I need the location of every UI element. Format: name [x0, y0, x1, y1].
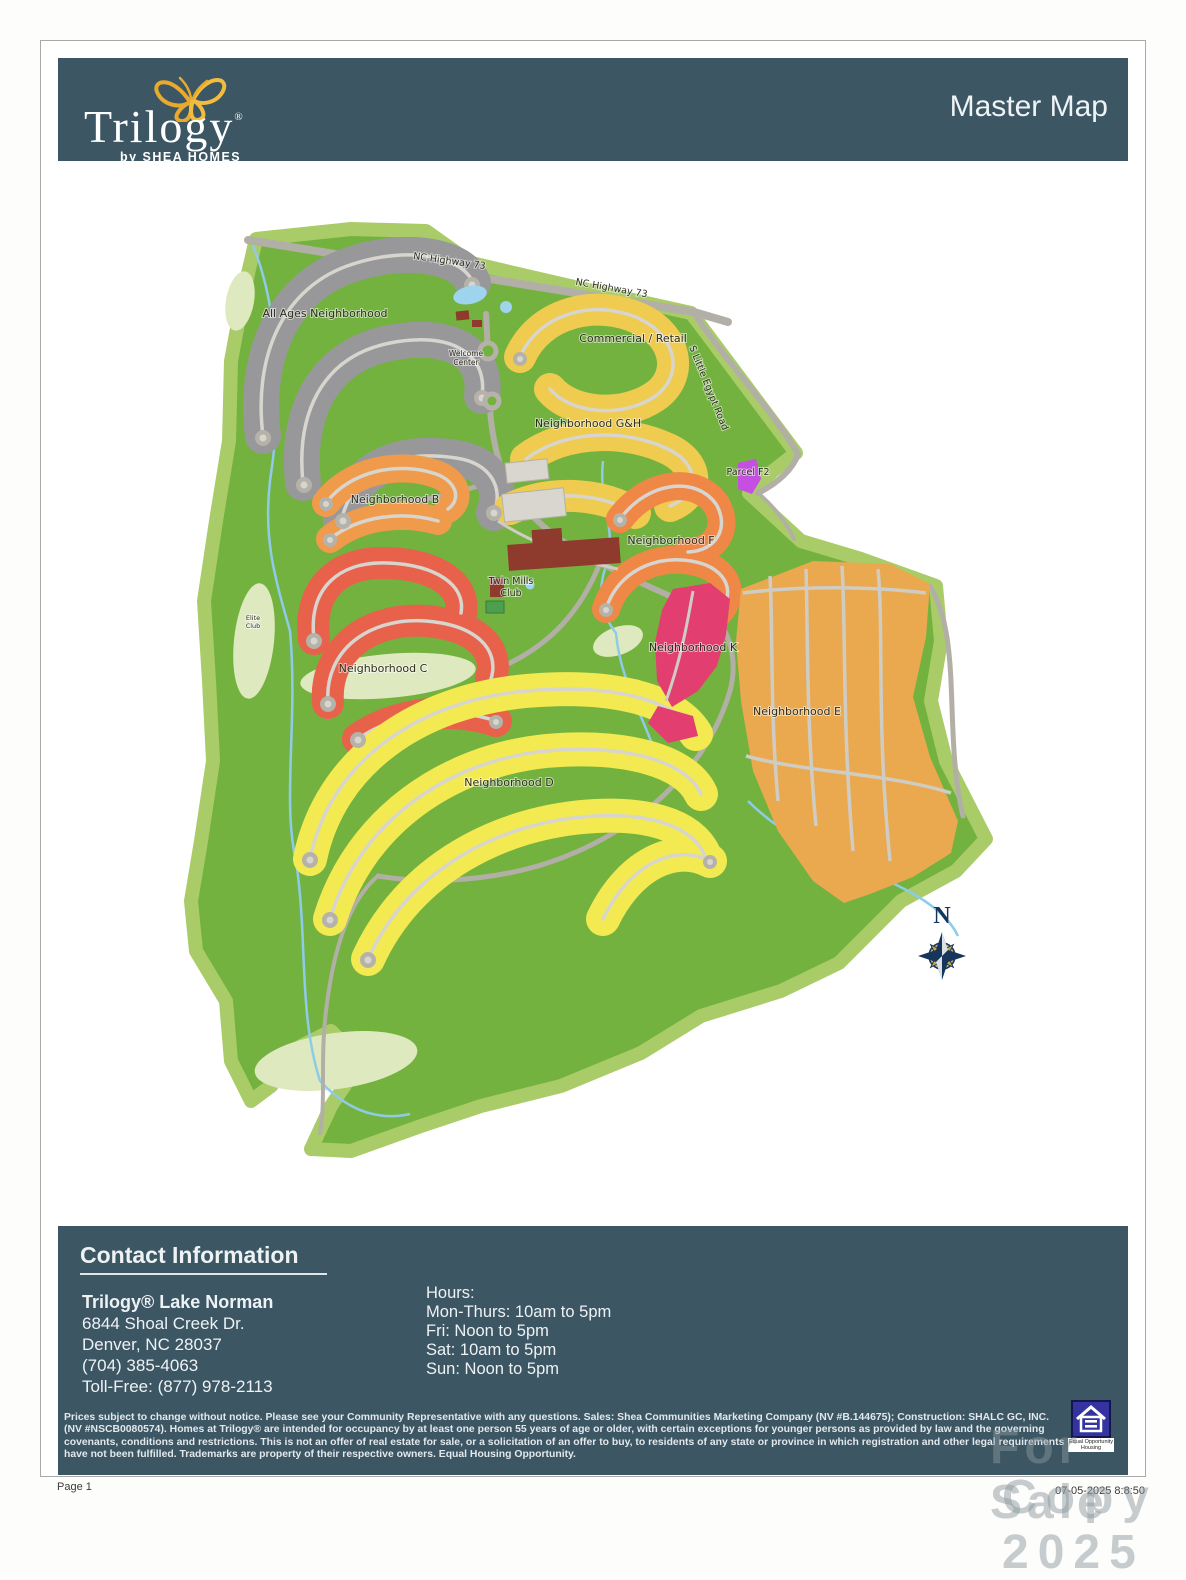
map-label-neighborhood-b: Neighborhood B [351, 493, 440, 506]
contact-section: Contact Information Trilogy® Lake Norman… [58, 1226, 1128, 1475]
address-line-2: Denver, NC 28037 [82, 1334, 273, 1355]
map-label-welcome-center-1: Welcome [449, 349, 484, 358]
map-label-neighborhood-c: Neighborhood C [339, 662, 428, 675]
community-name: Trilogy® Lake Norman [82, 1292, 273, 1313]
map-label-neighborhood-d: Neighborhood D [464, 776, 553, 789]
map-label-twin-mills-1: Twin Mills [488, 576, 534, 587]
contact-details: Trilogy® Lake Norman 6844 Shoal Creek Dr… [82, 1292, 273, 1397]
hours-heading: Hours: [426, 1284, 611, 1303]
contact-heading: Contact Information [80, 1242, 327, 1275]
map-label-neighborhood-k: Neighborhood K [649, 641, 738, 654]
hours-line: Fri: Noon to 5pm [426, 1322, 611, 1341]
map-label-parcel-f2: Parcel F2 [726, 467, 769, 478]
tollfree-number: Toll-Free: (877) 978-2113 [82, 1376, 273, 1397]
compass-north-label: N [933, 903, 951, 929]
footer-page-number: Page 1 [57, 1481, 92, 1493]
map-label-neighborhood-e: Neighborhood E [753, 705, 841, 718]
address-line-1: 6844 Shoal Creek Dr. [82, 1313, 273, 1334]
brand-name: Trilogy® [84, 104, 243, 150]
trilogy-logo: Trilogy® by SHEA HOMES [84, 60, 344, 160]
map-label-twin-mills-2: Club [500, 588, 521, 599]
master-map: All Ages Neighborhood NC Highway 73 NC H… [58, 161, 1131, 1226]
phone-number: (704) 385-4063 [82, 1355, 273, 1376]
equal-housing-caption-2: Housing [1068, 1445, 1114, 1451]
document-page: Trilogy® by SHEA HOMES Master Map [40, 40, 1146, 1477]
brand-registered-mark: ® [234, 111, 242, 123]
header-bar: Trilogy® by SHEA HOMES Master Map [58, 58, 1128, 161]
map-label-neighborhood-f: Neighborhood F [627, 534, 714, 547]
hours-block: Hours: Mon-Thurs: 10am to 5pm Fri: Noon … [426, 1284, 611, 1379]
equal-housing-logo: Equal Opportunity Housing [1066, 1400, 1116, 1452]
hours-line: Sat: 10am to 5pm [426, 1341, 611, 1360]
equal-housing-icon [1071, 1400, 1111, 1438]
hours-line: Sun: Noon to 5pm [426, 1360, 611, 1379]
legal-disclaimer: Prices subject to change without notice.… [64, 1412, 1066, 1462]
map-label-neighborhood-gh: Neighborhood G&H [535, 417, 641, 430]
map-label-welcome-center-2: Center [453, 358, 479, 367]
master-map-svg: All Ages Neighborhood NC Highway 73 NC H… [58, 161, 1131, 1226]
page-title: Master Map [950, 90, 1108, 124]
equal-housing-caption: Equal Opportunity Housing [1068, 1438, 1114, 1452]
brand-text: Trilogy [84, 101, 234, 152]
compass-rose [918, 932, 966, 980]
footer-timestamp: 07-05-2025 8:8:50 [1055, 1485, 1145, 1497]
map-label-elite-club-2: Club [246, 622, 261, 630]
map-label-commercial: Commercial / Retail [579, 332, 687, 345]
map-label-all-ages: All Ages Neighborhood [262, 307, 387, 320]
hours-line: Mon-Thurs: 10am to 5pm [426, 1303, 611, 1322]
map-label-elite-club-1: Elite [246, 614, 260, 622]
